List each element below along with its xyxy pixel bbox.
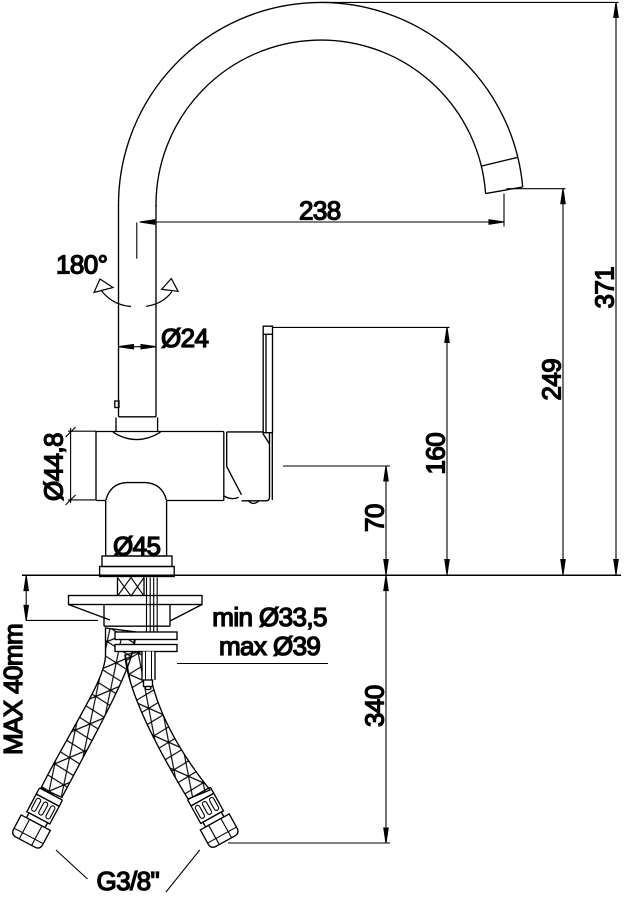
svg-text:G3/8": G3/8" (97, 866, 160, 896)
svg-text:180°: 180° (56, 250, 107, 280)
svg-text:MAX 40mm: MAX 40mm (0, 624, 28, 755)
svg-text:min Ø33,5: min Ø33,5 (212, 602, 327, 632)
svg-text:70: 70 (360, 504, 390, 532)
svg-text:Ø45: Ø45 (113, 531, 160, 561)
svg-text:Ø44,8: Ø44,8 (39, 433, 69, 501)
svg-text:238: 238 (299, 196, 341, 226)
svg-text:Ø24: Ø24 (161, 323, 208, 353)
svg-text:371: 371 (590, 267, 620, 309)
svg-text:160: 160 (421, 433, 451, 475)
svg-text:249: 249 (537, 359, 567, 401)
svg-text:340: 340 (360, 685, 390, 727)
svg-text:max Ø39: max Ø39 (219, 631, 320, 661)
